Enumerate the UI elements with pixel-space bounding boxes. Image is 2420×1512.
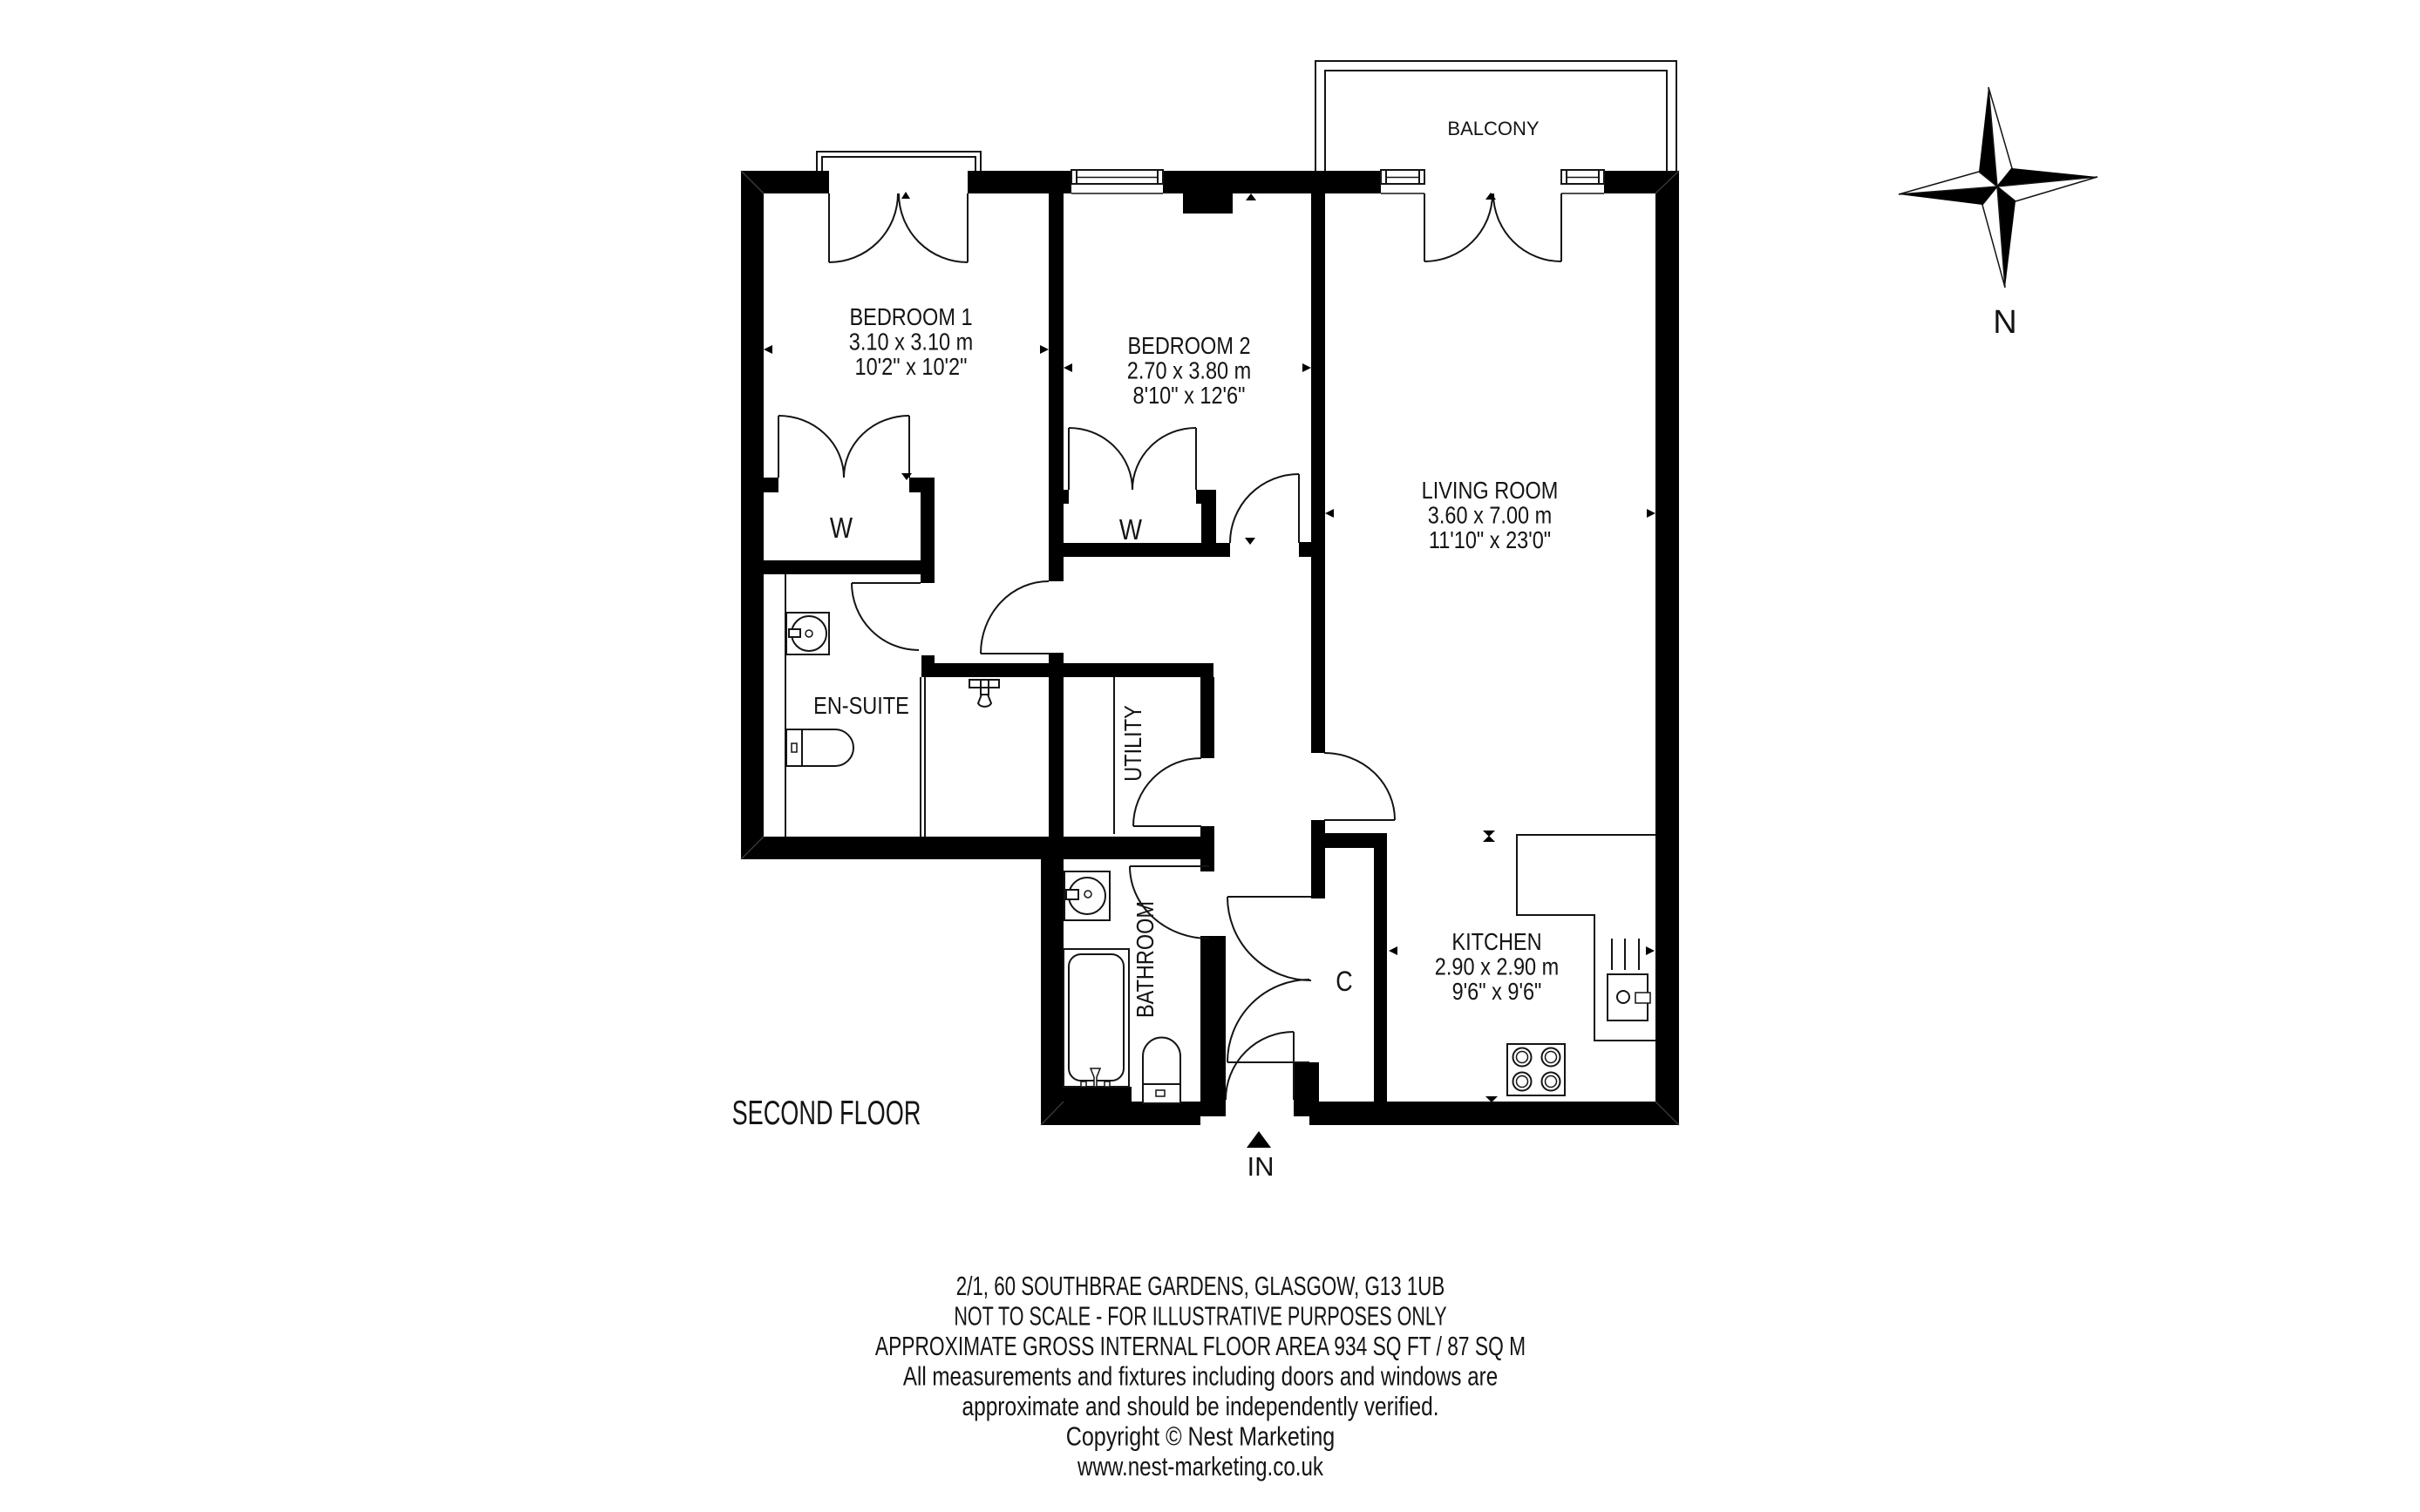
svg-text:SECOND FLOOR: SECOND FLOOR bbox=[732, 1095, 921, 1132]
svg-text:LIVING ROOM: LIVING ROOM bbox=[1422, 478, 1559, 504]
svg-text:www.nest-marketing.co.uk: www.nest-marketing.co.uk bbox=[1077, 1451, 1323, 1481]
svg-text:BEDROOM 2: BEDROOM 2 bbox=[1127, 333, 1250, 359]
svg-text:10'2" x 10'2": 10'2" x 10'2" bbox=[855, 354, 968, 380]
svg-text:C: C bbox=[1336, 966, 1352, 998]
svg-text:EN-SUITE: EN-SUITE bbox=[813, 693, 909, 719]
svg-text:W: W bbox=[830, 512, 853, 545]
svg-text:Copyright © Nest Marketing: Copyright © Nest Marketing bbox=[1066, 1420, 1336, 1451]
svg-text:3.10 x 3.10 m: 3.10 x 3.10 m bbox=[849, 329, 973, 356]
svg-text:W: W bbox=[1119, 514, 1142, 546]
svg-text:All measurements and fixtures: All measurements and fixtures including … bbox=[903, 1361, 1498, 1392]
svg-text:11'10" x 23'0": 11'10" x 23'0" bbox=[1429, 527, 1551, 553]
svg-text:3.60 x 7.00 m: 3.60 x 7.00 m bbox=[1428, 503, 1552, 529]
svg-text:IN: IN bbox=[1247, 1151, 1275, 1182]
svg-text:2.90 x 2.90 m: 2.90 x 2.90 m bbox=[1435, 954, 1559, 980]
svg-text:BEDROOM 1: BEDROOM 1 bbox=[849, 304, 972, 330]
svg-text:approximate and should be inde: approximate and should be independently … bbox=[962, 1391, 1438, 1420]
svg-text:BALCONY: BALCONY bbox=[1447, 118, 1539, 139]
svg-text:KITCHEN: KITCHEN bbox=[1451, 929, 1541, 955]
svg-text:2.70 x 3.80 m: 2.70 x 3.80 m bbox=[1127, 358, 1251, 384]
svg-text:UTILITY: UTILITY bbox=[1120, 705, 1146, 782]
svg-text:APPROXIMATE GROSS INTERNAL FLO: APPROXIMATE GROSS INTERNAL FLOOR AREA 93… bbox=[875, 1331, 1526, 1361]
svg-text:BATHROOM: BATHROOM bbox=[1132, 901, 1159, 1018]
svg-text:N: N bbox=[1993, 304, 2016, 341]
svg-text:NOT TO SCALE - FOR ILLUSTRATIV: NOT TO SCALE - FOR ILLUSTRATIVE PURPOSES… bbox=[954, 1301, 1447, 1332]
svg-text:2/1, 60 SOUTHBRAE GARDENS, GLA: 2/1, 60 SOUTHBRAE GARDENS, GLASGOW, G13 … bbox=[956, 1271, 1445, 1300]
svg-text:8'10" x 12'6": 8'10" x 12'6" bbox=[1133, 383, 1246, 409]
svg-text:9'6" x 9'6": 9'6" x 9'6" bbox=[1452, 979, 1542, 1005]
